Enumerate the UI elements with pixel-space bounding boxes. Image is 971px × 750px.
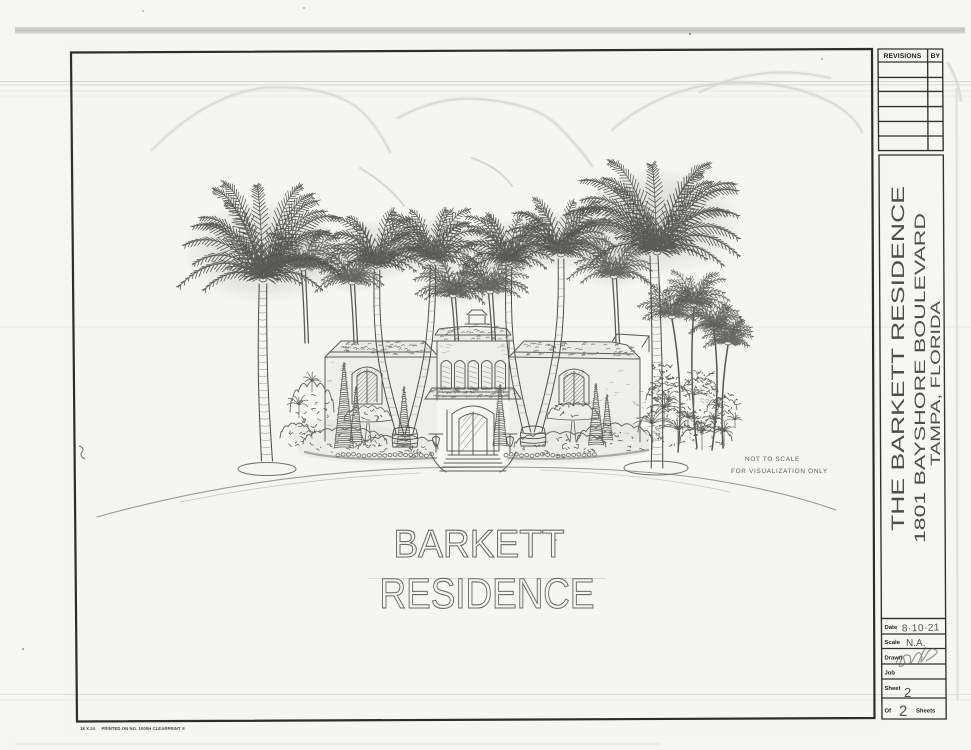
svg-text:Scale: Scale [885, 639, 901, 646]
svg-text:18 X 24 PRINTED ON NO. 100: 18 X 24 PRINTED ON NO. 1000H CLEARPRINT … [80, 726, 186, 731]
svg-text:Date: Date [885, 624, 898, 631]
svg-text:BARKETT: BARKETT [394, 523, 565, 566]
svg-text:N.A.: N.A. [906, 638, 925, 649]
svg-text:8·10·21: 8·10·21 [902, 623, 940, 635]
svg-text:REVISIONS: REVISIONS [884, 53, 922, 60]
svg-text:THE BARKETT RESIDENCE: THE BARKETT RESIDENCE [888, 186, 908, 531]
svg-text:2: 2 [904, 685, 911, 700]
svg-text:Sheet: Sheet [885, 685, 901, 692]
svg-text:TAMPA, FLORIDA: TAMPA, FLORIDA [928, 301, 943, 466]
svg-text:2: 2 [899, 703, 907, 720]
svg-text:RESIDENCE: RESIDENCE [380, 571, 595, 618]
svg-text:Sheets: Sheets [916, 708, 936, 715]
svg-text:Of: Of [885, 708, 892, 715]
svg-text:1801 BAYSHORE BOULEVARD: 1801 BAYSHORE BOULEVARD [912, 213, 929, 543]
svg-text:NOT TO SCALE: NOT TO SCALE [745, 456, 800, 463]
svg-text:BY: BY [931, 53, 941, 60]
svg-text:Job: Job [885, 670, 896, 677]
svg-text:FOR VISUALIZATION ONLY: FOR VISUALIZATION ONLY [731, 468, 828, 475]
